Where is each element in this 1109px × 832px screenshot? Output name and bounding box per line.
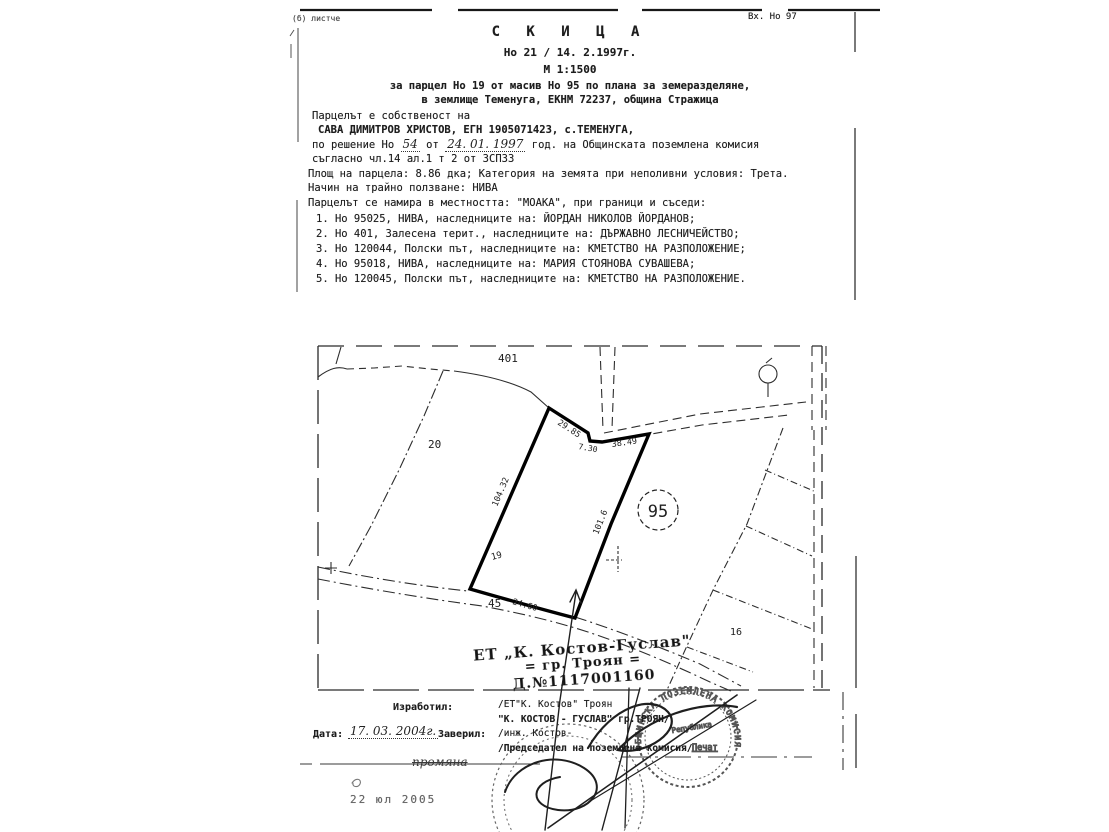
neighbors-list: 1. Но 95025, НИВА, наследниците на: ЙОРД…: [316, 212, 746, 287]
subject-line-2: в землище Теменуга, ЕКНМ 72237, община С…: [290, 94, 850, 106]
label-parcel-20: 20: [428, 438, 441, 451]
neighbor-item: 4. Но 95018, НИВА, наследниците на: МАРИ…: [316, 257, 746, 272]
neighbor-item: 1. Но 95025, НИВА, наследниците на: ЙОРД…: [316, 212, 746, 227]
scanned-document-page: 401 20 95 19 16 45 29.85 7.30 38.49 104.…: [0, 0, 1109, 832]
prepared-by-label: Изработил:: [393, 702, 453, 713]
decision-mid: от: [426, 139, 439, 151]
measure-top-right: 38.49: [611, 437, 638, 450]
decision-prefix: по решение Но: [312, 139, 394, 151]
date-stamp: 22 юл 2005: [350, 793, 436, 806]
measure-notch: 7.30: [578, 442, 599, 454]
usage-line: Начин на трайно ползване: НИВА: [308, 182, 498, 194]
label-parcel-16: 16: [730, 627, 742, 638]
corner-note: (б) листче: [292, 14, 340, 23]
neighbor-item: 3. Но 120044, Полски път, наследниците н…: [316, 242, 746, 257]
registration-number: Вх. Но 97: [748, 12, 797, 22]
date-value-handwritten: 17. 03. 2004г.: [348, 724, 438, 739]
struck-note: промяна: [412, 755, 468, 769]
label-area-401: 401: [498, 352, 518, 365]
survey-point-icon: [759, 358, 777, 397]
neighbor-item: 5. Но 120045, Полски път, наследниците н…: [316, 272, 746, 287]
label-parcel-19: 19: [490, 550, 503, 562]
certifier-line: /Председател на поземлена комисия/: [498, 742, 692, 757]
label-road-45: 45: [488, 597, 501, 610]
area-line: Площ на парцела: 8.86 дка; Категория на …: [308, 168, 788, 180]
prepared-by-line-2: "К. КОСТОВ - ГУСЛАВ" гр.ТРОЯН/: [498, 713, 692, 728]
label-massif-95: 95: [648, 502, 668, 522]
scale-line: М 1:1500: [290, 63, 850, 76]
date-label: Дата:: [313, 729, 343, 740]
owner-intro: Парцелът е собственост на: [312, 110, 470, 122]
decision-date-handwritten: 24. 01. 1997: [445, 137, 525, 152]
prepared-by-line-3: /инж. Костов-: [498, 727, 692, 742]
document-number-line: Но 21 / 14. 2.1997г.: [290, 46, 850, 59]
map-frame: [318, 346, 830, 690]
round-stamp-inner-2: Печат: [692, 743, 718, 753]
document-title: С К И Ц А: [290, 24, 850, 40]
subject-line-1: за парцел Но 19 от масив Но 95 по плана …: [290, 80, 850, 92]
decision-suffix: год. на Общинската поземлена комисия: [532, 139, 760, 151]
neighbor-item: 2. Но 401, Залесена терит., наследниците…: [316, 227, 746, 242]
decision-line: по решение Но 54 от 24. 01. 1997 год. на…: [312, 137, 759, 151]
owner-name-line: САВА ДИМИТРОВ ХРИСТОВ, ЕГН 1905071423, с…: [318, 124, 634, 136]
prepared-by-block: /ЕТ"К. Костов" Троян "К. КОСТОВ - ГУСЛАВ…: [498, 698, 692, 756]
legal-basis-line: съгласно чл.14 ал.1 т 2 от ЗСПЗЗ: [312, 153, 514, 165]
neighbors-intro: Парцелът се намира в местността: "МОАКА"…: [308, 197, 706, 209]
certified-label: Заверил:: [438, 729, 486, 740]
prepared-by-line-1: /ЕТ"К. Костов" Троян: [498, 698, 692, 713]
measure-bottom: 24.60: [511, 597, 538, 614]
decision-number-handwritten: 54: [401, 137, 420, 152]
